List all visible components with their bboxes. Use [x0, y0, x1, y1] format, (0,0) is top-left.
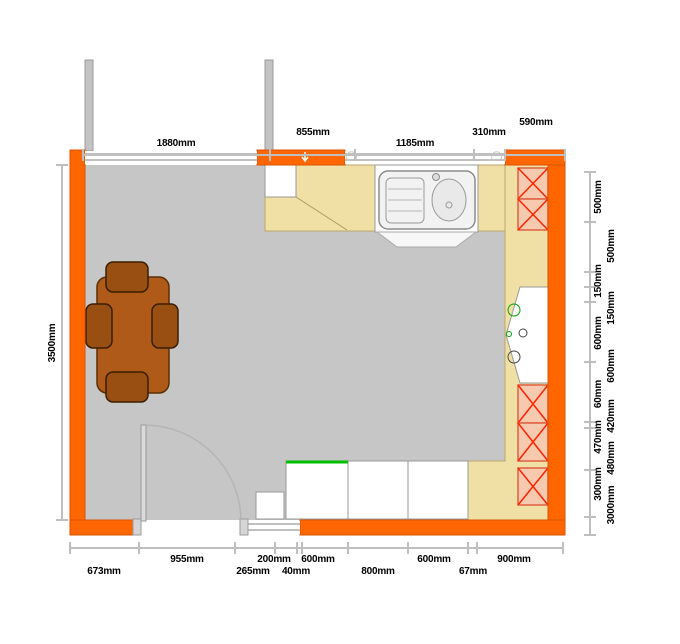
dim-label: 150mm	[606, 291, 617, 325]
dim-label: 500mm	[606, 229, 617, 263]
dimension-line-bottom	[70, 542, 563, 554]
dim-label: 420mm	[606, 399, 617, 433]
dim-label: 67mm	[459, 566, 487, 577]
dim-label: 200mm	[257, 554, 291, 565]
dim-label: 600mm	[301, 554, 335, 565]
dim-label: 855mm	[296, 127, 330, 138]
small-unit[interactable]	[256, 492, 284, 519]
dim-label: 900mm	[497, 554, 531, 565]
dim-label: 955mm	[170, 554, 204, 565]
wall-bottom-left[interactable]	[70, 520, 140, 535]
wall-cabinet-symbol[interactable]	[518, 385, 548, 423]
tap-icon	[433, 174, 440, 181]
dim-label: 60mm	[593, 380, 604, 408]
dim-label: 470mm	[593, 420, 604, 454]
window-bottom[interactable]	[245, 521, 300, 534]
dim-label: 1880mm	[157, 138, 196, 149]
dim-label: 3500mm	[47, 323, 58, 362]
dim-label: 800mm	[361, 566, 395, 577]
chair[interactable]	[152, 304, 178, 348]
door-jamb	[133, 519, 141, 535]
dining-set[interactable]	[86, 262, 178, 402]
dim-label: 300mm	[593, 467, 604, 501]
dim-label: 600mm	[593, 316, 604, 350]
wall-cabinet-symbol[interactable]	[518, 423, 548, 461]
base-unit-1[interactable]	[286, 461, 348, 519]
dim-label: 500mm	[593, 180, 604, 214]
dim-label: 1185mm	[396, 138, 435, 149]
sink-unit[interactable]	[375, 165, 478, 247]
dim-label: 310mm	[472, 127, 506, 138]
window-top-right[interactable]	[345, 151, 505, 164]
dim-label: 3000mm	[606, 485, 617, 524]
wall-cabinet-symbol[interactable]	[518, 199, 548, 230]
wall-bottom-right[interactable]	[300, 520, 565, 535]
dim-label: 590mm	[519, 117, 553, 128]
wall-top-right[interactable]	[505, 150, 565, 165]
chair[interactable]	[106, 372, 148, 402]
base-unit-2[interactable]	[348, 461, 408, 519]
adjacent-wall-stub-right	[265, 60, 273, 151]
chair[interactable]	[86, 304, 112, 348]
window-top-left[interactable]	[85, 151, 257, 164]
dim-label: 265mm	[236, 566, 270, 577]
floor-plan: 1880mm 855mm 1185mm 310mm 590mm 955mm 20…	[0, 0, 680, 644]
dim-label: 480mm	[606, 441, 617, 475]
wall-left[interactable]	[70, 150, 85, 535]
chair[interactable]	[106, 262, 148, 292]
wall-cabinet-symbol[interactable]	[518, 168, 548, 199]
dim-label: 150mm	[593, 264, 604, 298]
base-unit-3[interactable]	[408, 461, 468, 519]
wall-right[interactable]	[548, 150, 565, 535]
door-jamb	[240, 519, 248, 535]
sink-bowl	[432, 179, 466, 221]
dim-label: 673mm	[87, 566, 121, 577]
adjacent-wall-stub-left	[85, 60, 93, 151]
wall-cabinet-symbol[interactable]	[518, 468, 548, 505]
tall-unit[interactable]	[265, 165, 296, 197]
dim-label: 600mm	[417, 554, 451, 565]
dim-label: 40mm	[282, 566, 310, 577]
floor-plan-canvas: 1880mm 855mm 1185mm 310mm 590mm 955mm 20…	[0, 0, 680, 644]
door-leaf[interactable]	[141, 425, 146, 521]
dim-label: 600mm	[606, 349, 617, 383]
